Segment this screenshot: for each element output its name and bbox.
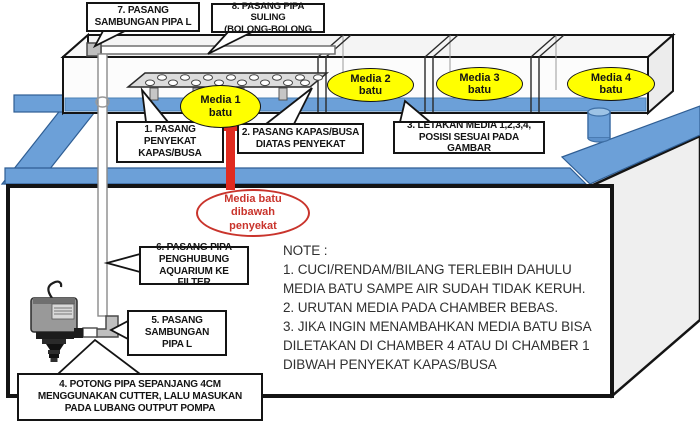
callout-step-2: 2. PASANG KAPAS/BUSA DIATAS PENYEKAT bbox=[237, 123, 364, 154]
pump-output-nozzle bbox=[74, 328, 83, 338]
intake-pipe bbox=[96, 54, 109, 316]
callout-step-5: 5. PASANG SAMBUNGAN PIPA L bbox=[127, 310, 227, 356]
media-1-label: Media 1 batu bbox=[180, 85, 261, 128]
note-line: 3. JIKA INGIN MENAMBAHKAN MEDIA BATU BIS… bbox=[283, 317, 597, 336]
pump-label bbox=[52, 304, 74, 319]
callout-step-1: 1. PASANG PENYEKAT KAPAS/BUSA bbox=[116, 121, 224, 163]
media-batu-highlight: Media batu dibawah penyekat bbox=[196, 189, 310, 237]
note-line: 2. URUTAN MEDIA PADA CHAMBER BEBAS. bbox=[283, 298, 597, 317]
callout-step-8: 8. PASANG PIPA SULING (BOLONG-BOLONG bbox=[211, 3, 325, 33]
note-line: DIBWAH PENYEKAT KAPAS/BUSA bbox=[283, 355, 597, 374]
note-line: MEDIA BATU SAMPE AIR SUDAH TIDAK KERUH. bbox=[283, 279, 597, 298]
callout-step-3: 3. LETAKAN MEDIA 1,2,3,4, POSISI SESUAI … bbox=[393, 121, 545, 154]
note-title: NOTE : bbox=[283, 241, 597, 260]
note-line: DILETAKAN DI CHAMBER 4 ATAU DI CHAMBER 1 bbox=[283, 336, 597, 355]
callout-step-7: 7. PASANG SAMBUNGAN PIPA L bbox=[86, 2, 200, 32]
note-block: NOTE : 1. CUCI/RENDAM/BILANG TERLEBIH DA… bbox=[283, 241, 597, 374]
media-2-label: Media 2 batu bbox=[327, 68, 414, 102]
callout-step-6: 6. PASANG PIPA PENGHUBUNG AQUARIUM KE FI… bbox=[139, 246, 249, 285]
filter-diagram-canvas: 7. PASANG SAMBUNGAN PIPA L 8. PASANG PIP… bbox=[0, 0, 700, 423]
pipe-coupler bbox=[83, 328, 97, 337]
media-3-label: Media 3 batu bbox=[436, 67, 523, 101]
outlet-pipe bbox=[588, 108, 610, 142]
water-front-band bbox=[5, 168, 586, 184]
callout-step-4: 4. POTONG PIPA SEPANJANG 4CM MENGGUNAKAN… bbox=[17, 373, 263, 421]
note-line: 1. CUCI/RENDAM/BILANG TERLEBIH DAHULU bbox=[283, 260, 597, 279]
media-4-label: Media 4 batu bbox=[567, 67, 655, 101]
